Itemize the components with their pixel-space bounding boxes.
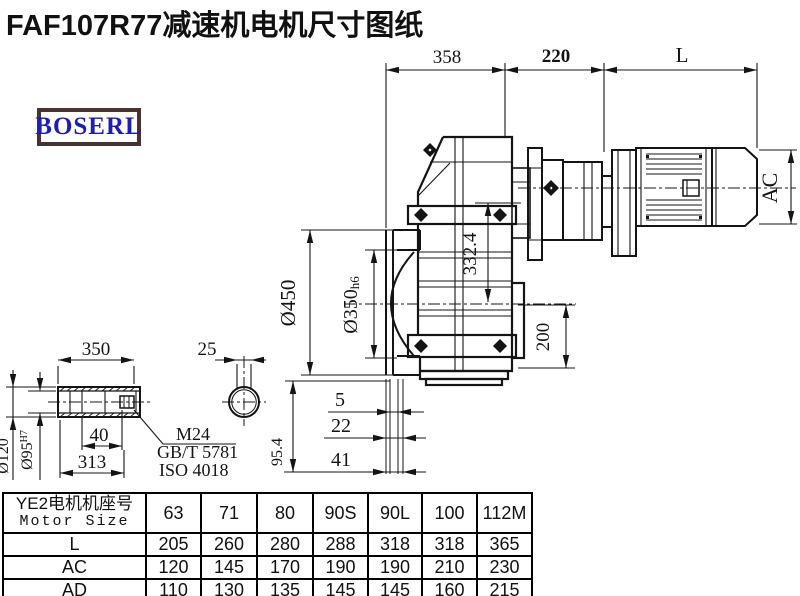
dim-41-label: 41 bbox=[331, 449, 351, 471]
dim-358-label: 358 bbox=[433, 47, 462, 68]
table-row-AC: AC 120 145 170 190 190 210 230 bbox=[3, 556, 532, 579]
step-dim-arrows bbox=[290, 381, 416, 475]
col-100: 100 bbox=[422, 493, 477, 533]
row-label-AD: AD bbox=[3, 579, 146, 596]
cell: 130 bbox=[201, 579, 257, 596]
row-label-AC: AC bbox=[3, 556, 146, 579]
dim-5-label: 5 bbox=[335, 389, 345, 411]
table-header-row: YE2电机机座号 Motor Size 63 71 80 90S 90L 100… bbox=[3, 493, 532, 533]
dim-95h7-label: Ø95H7 bbox=[19, 430, 36, 470]
motor bbox=[612, 148, 757, 256]
cell: 318 bbox=[422, 533, 477, 556]
dim-313-label: 313 bbox=[78, 452, 107, 473]
table-header-cell: YE2电机机座号 Motor Size bbox=[3, 493, 146, 533]
col-80: 80 bbox=[257, 493, 313, 533]
cell: 365 bbox=[477, 533, 532, 556]
row-label-L: L bbox=[3, 533, 146, 556]
table-header-cn: YE2电机机座号 bbox=[4, 495, 145, 514]
dim-shaft350-label: 350 bbox=[82, 339, 111, 360]
cell: 190 bbox=[313, 556, 368, 579]
step-dims bbox=[284, 379, 426, 474]
cell: 205 bbox=[146, 533, 201, 556]
col-71: 71 bbox=[201, 493, 257, 533]
cell: 260 bbox=[201, 533, 257, 556]
cell: 145 bbox=[201, 556, 257, 579]
dim-40-label: 40 bbox=[90, 425, 109, 446]
cell: 230 bbox=[477, 556, 532, 579]
cell: 288 bbox=[313, 533, 368, 556]
table-row-AD: AD 110 130 135 145 145 160 215 bbox=[3, 579, 532, 596]
bolt-symbols bbox=[414, 143, 559, 353]
top-dimension-lines bbox=[386, 63, 757, 228]
cell: 210 bbox=[422, 556, 477, 579]
cell: 120 bbox=[146, 556, 201, 579]
col-90s: 90S bbox=[313, 493, 368, 533]
motor-size-table: YE2电机机座号 Motor Size 63 71 80 90S 90L 100… bbox=[2, 492, 533, 596]
cell: 145 bbox=[368, 579, 422, 596]
note-iso4018: ISO 4018 bbox=[159, 460, 229, 480]
note-m24: M24 bbox=[176, 424, 210, 444]
cell: 110 bbox=[146, 579, 201, 596]
cell: 145 bbox=[313, 579, 368, 596]
cell: 215 bbox=[477, 579, 532, 596]
dim-220-label: 220 bbox=[542, 46, 571, 67]
cell: 160 bbox=[422, 579, 477, 596]
dim-25-label: 25 bbox=[198, 339, 217, 360]
cell: 170 bbox=[257, 556, 313, 579]
note-gbt5781: GB/T 5781 bbox=[157, 442, 238, 462]
output-flange bbox=[386, 230, 420, 375]
col-63: 63 bbox=[146, 493, 201, 533]
dim-200-label: 200 bbox=[533, 323, 554, 352]
dim-954-label: 95.4 bbox=[269, 438, 286, 466]
col-90l: 90L bbox=[368, 493, 422, 533]
dim-120-label: Ø120 bbox=[0, 438, 12, 474]
drawing-page: FAF107R77减速机电机尺寸图纸 BOSERL bbox=[0, 0, 800, 596]
cell: 318 bbox=[368, 533, 422, 556]
dim-332-label: 332.4 bbox=[460, 232, 481, 275]
dim-350h6-label: Ø350h6 bbox=[340, 276, 362, 334]
table-header-en: Motor Size bbox=[4, 514, 145, 531]
cell: 190 bbox=[368, 556, 422, 579]
dim-L-label: L bbox=[676, 43, 689, 67]
col-112m: 112M bbox=[477, 493, 532, 533]
table-row-L: L 205 260 280 288 318 318 365 bbox=[3, 533, 532, 556]
cell: 280 bbox=[257, 533, 313, 556]
motor-adapter bbox=[528, 148, 612, 260]
dim-450-label: Ø450 bbox=[276, 280, 300, 327]
dim-22-label: 22 bbox=[331, 415, 351, 437]
dim-ac-label: AC bbox=[757, 173, 782, 204]
cell: 135 bbox=[257, 579, 313, 596]
